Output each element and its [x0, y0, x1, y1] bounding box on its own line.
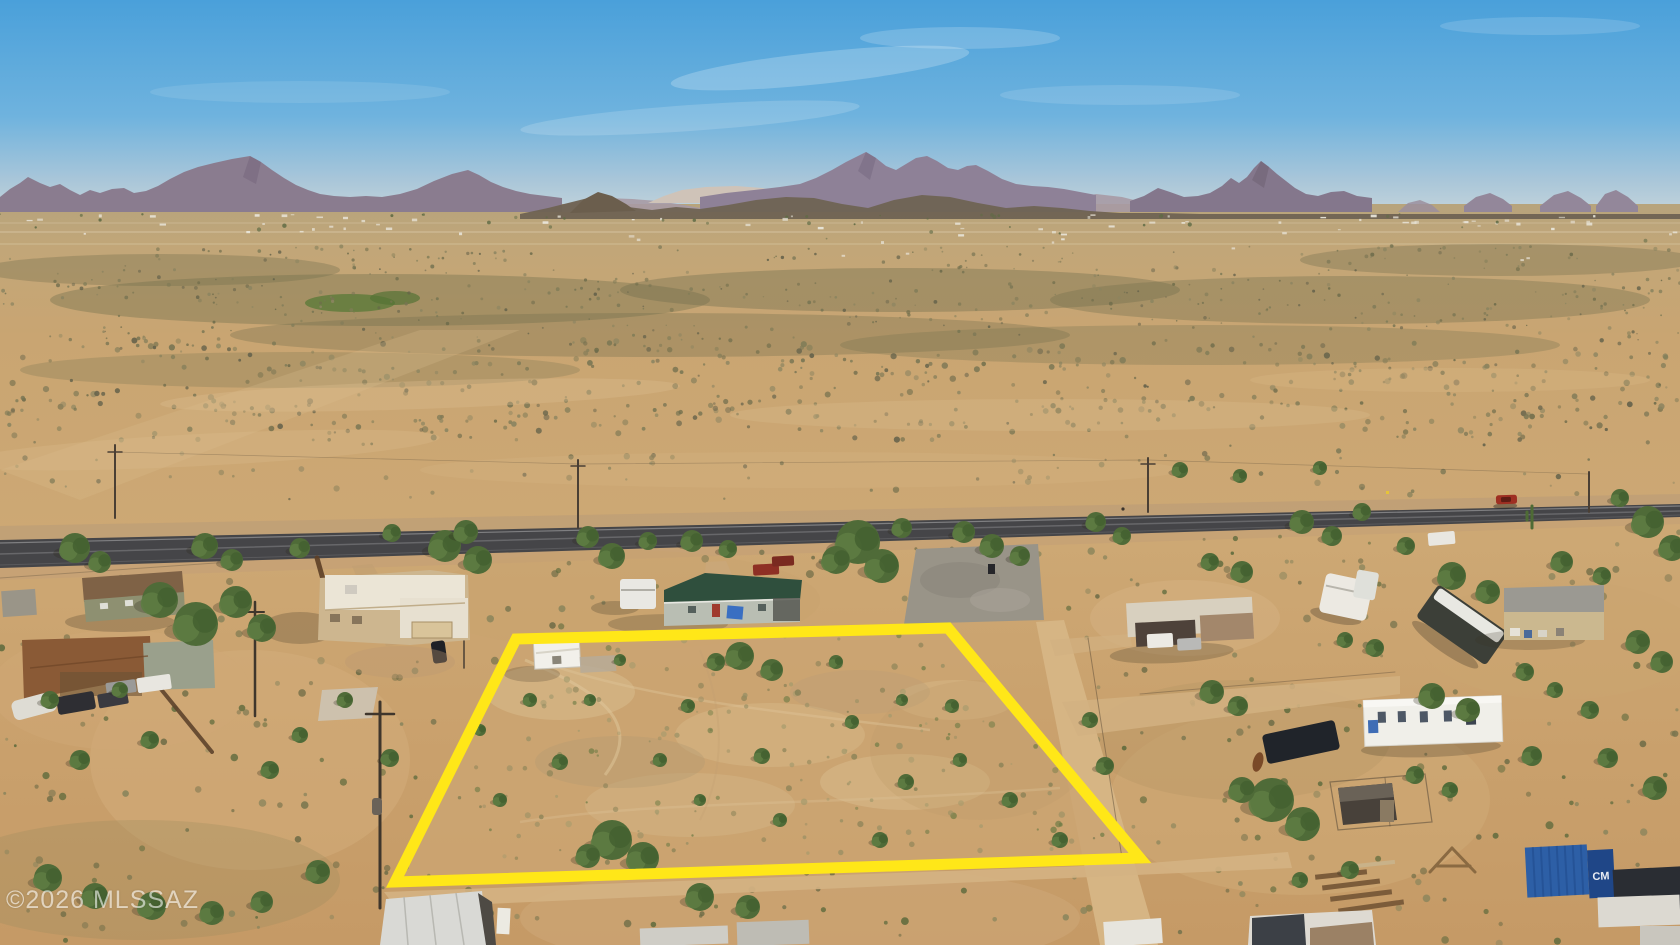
silver-car [1177, 637, 1202, 650]
gray-shed [1, 589, 37, 617]
blue-tarp [726, 605, 743, 619]
blue-shipping-container: CM [1525, 843, 1616, 902]
container-label: CM [1592, 870, 1610, 883]
aerial-photo: CM [0, 0, 1680, 945]
white-truck-2 [1428, 531, 1456, 546]
pedestrian [1121, 507, 1124, 510]
bottom-gray-roof-2 [737, 920, 810, 945]
travel-trailer [620, 579, 656, 609]
white-gate [496, 908, 510, 935]
road-sign [1386, 491, 1389, 494]
bottom-right-tarps [1248, 910, 1376, 945]
trash-bin [988, 564, 995, 574]
bottom-white-roof-small [1103, 918, 1163, 945]
bottom-gray-roof-1 [640, 925, 729, 945]
concrete-pad [580, 655, 617, 673]
red-car [1493, 495, 1517, 510]
red-truck-yard [772, 555, 794, 566]
white-car [1147, 633, 1174, 648]
garage-door [412, 622, 452, 638]
stable-shed [1338, 783, 1397, 825]
red-door [712, 604, 720, 617]
